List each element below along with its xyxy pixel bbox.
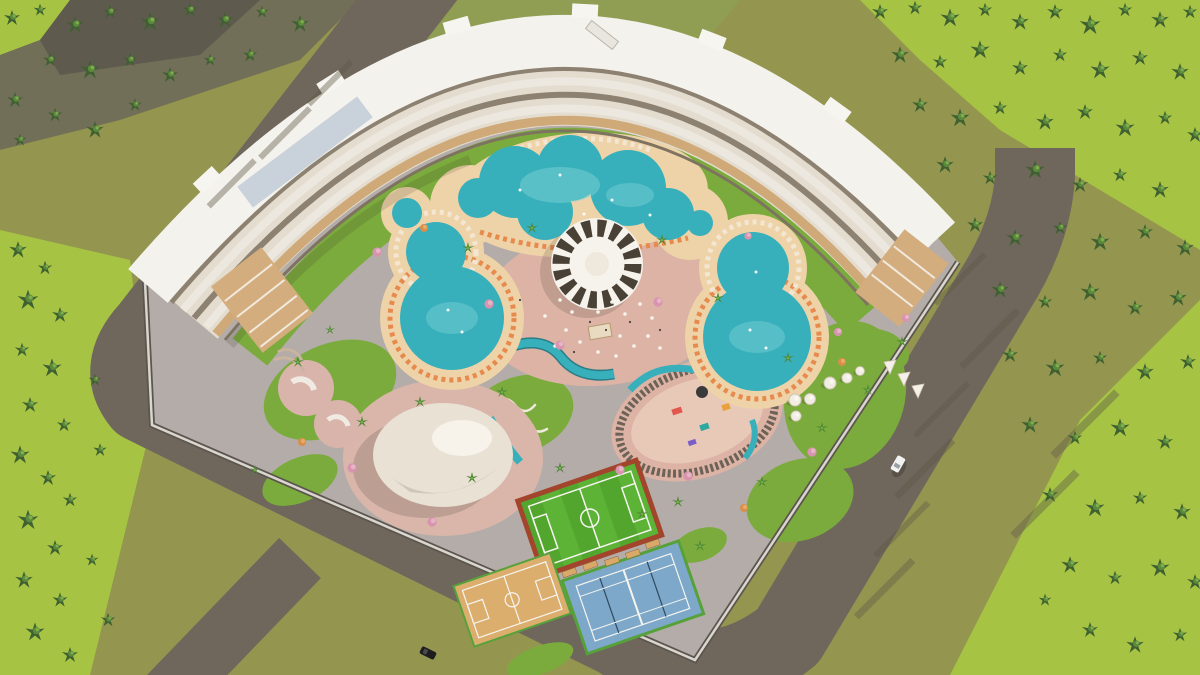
- kids-pool-west: [392, 198, 422, 228]
- kids-pool-east: [687, 210, 713, 236]
- render-stage: [0, 0, 1200, 675]
- resort-aerial-render: [0, 0, 1200, 675]
